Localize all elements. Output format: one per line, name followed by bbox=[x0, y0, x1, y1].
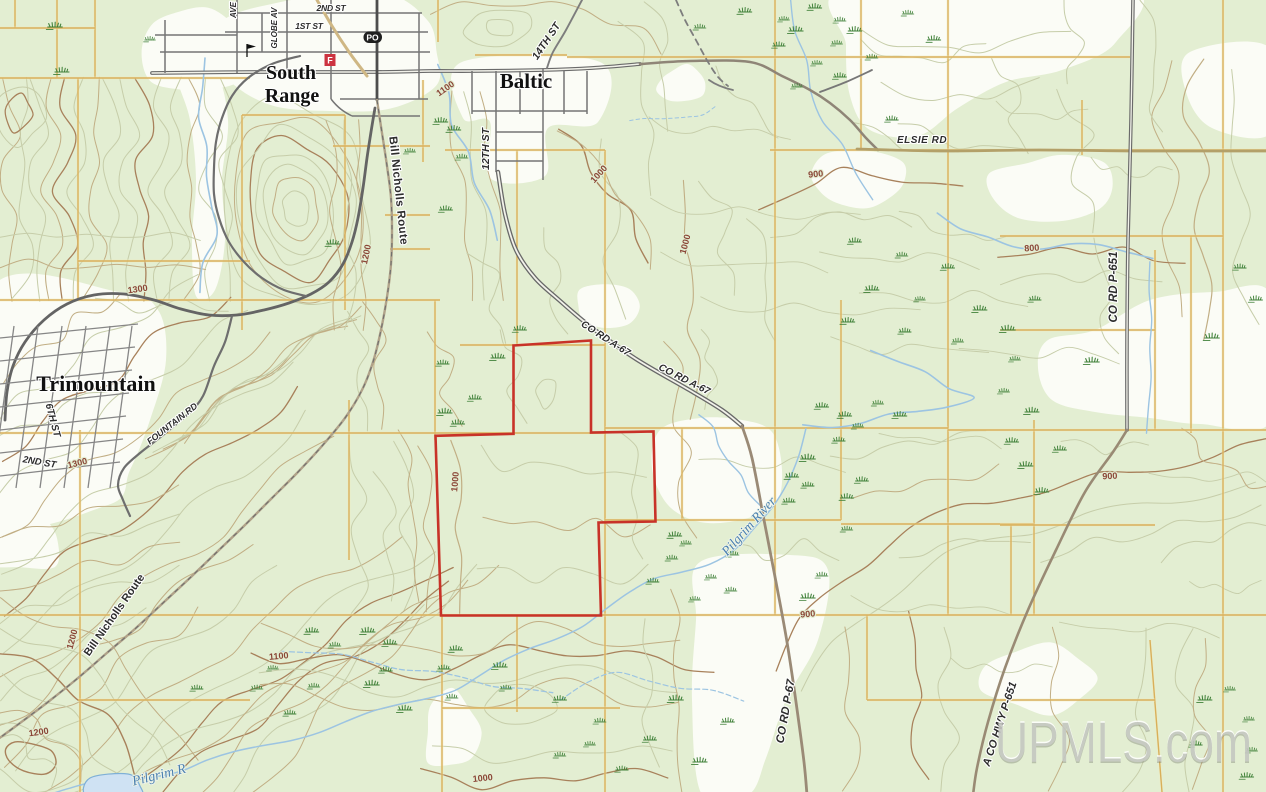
svg-text:South: South bbox=[266, 62, 316, 84]
svg-text:800: 800 bbox=[1024, 242, 1040, 253]
svg-text:PO: PO bbox=[366, 33, 379, 43]
svg-text:12TH ST: 12TH ST bbox=[480, 126, 492, 170]
svg-text:2ND ST: 2ND ST bbox=[315, 3, 346, 13]
svg-text:UPMLS.com: UPMLS.com bbox=[995, 712, 1252, 776]
svg-text:900: 900 bbox=[800, 608, 816, 619]
svg-text:900: 900 bbox=[1102, 471, 1118, 482]
svg-text:1000: 1000 bbox=[472, 772, 493, 784]
svg-text:1000: 1000 bbox=[449, 471, 461, 492]
svg-text:CO RD P-651: CO RD P-651 bbox=[1108, 252, 1120, 323]
svg-text:900: 900 bbox=[808, 168, 824, 180]
svg-text:Range: Range bbox=[265, 85, 320, 107]
svg-text:F: F bbox=[327, 56, 333, 66]
svg-text:GLOBE AV: GLOBE AV bbox=[270, 7, 279, 49]
svg-text:AVE: AVE bbox=[229, 1, 238, 19]
svg-text:1ST ST: 1ST ST bbox=[295, 21, 324, 31]
svg-text:ELSIE RD: ELSIE RD bbox=[897, 135, 947, 146]
svg-text:Baltic: Baltic bbox=[500, 69, 553, 93]
svg-text:Trimountain: Trimountain bbox=[36, 371, 155, 396]
svg-text:1100: 1100 bbox=[269, 650, 289, 662]
